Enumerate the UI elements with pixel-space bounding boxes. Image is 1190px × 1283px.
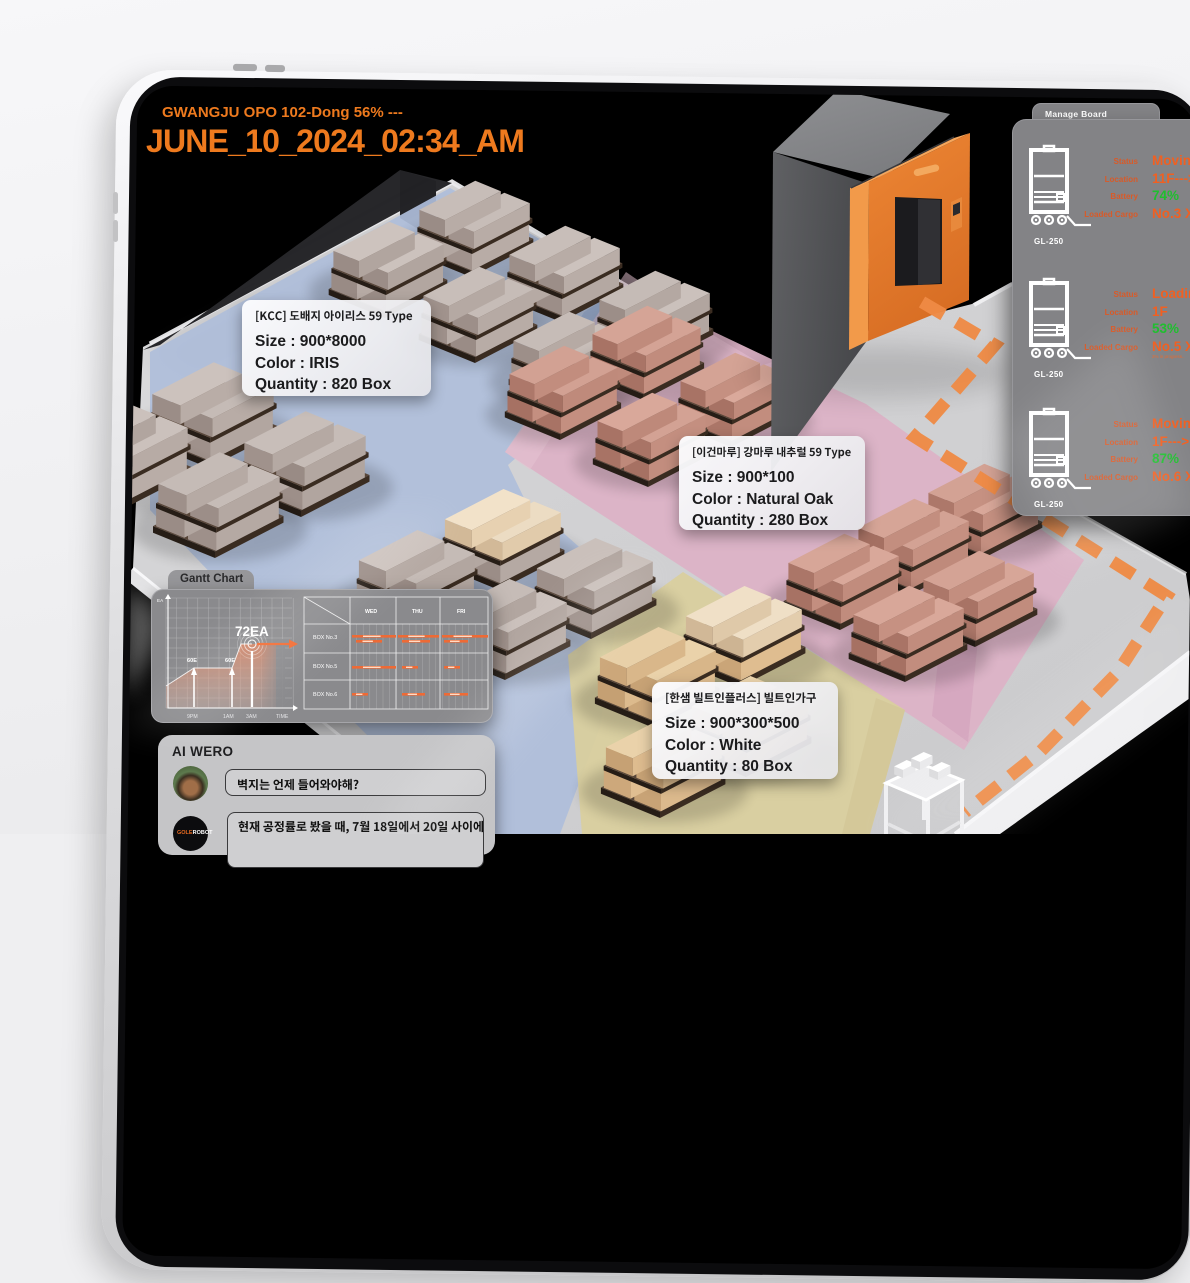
svg-text:BOX No.6: BOX No.6 <box>313 692 337 698</box>
svg-text:3AM: 3AM <box>246 714 257 720</box>
svg-text:60E: 60E <box>225 658 235 664</box>
svg-text:EA: EA <box>157 598 164 603</box>
svg-text:FRI: FRI <box>457 609 466 615</box>
svg-text:BOX No.5: BOX No.5 <box>313 664 337 670</box>
svg-text:TIME: TIME <box>276 714 289 720</box>
svg-text:1AM: 1AM <box>223 714 234 720</box>
svg-text:THU: THU <box>412 609 423 615</box>
svg-text:WED: WED <box>365 609 377 615</box>
svg-text:60E: 60E <box>187 658 197 664</box>
svg-text:BOX No.3: BOX No.3 <box>313 635 337 641</box>
svg-text:9PM: 9PM <box>187 714 198 720</box>
